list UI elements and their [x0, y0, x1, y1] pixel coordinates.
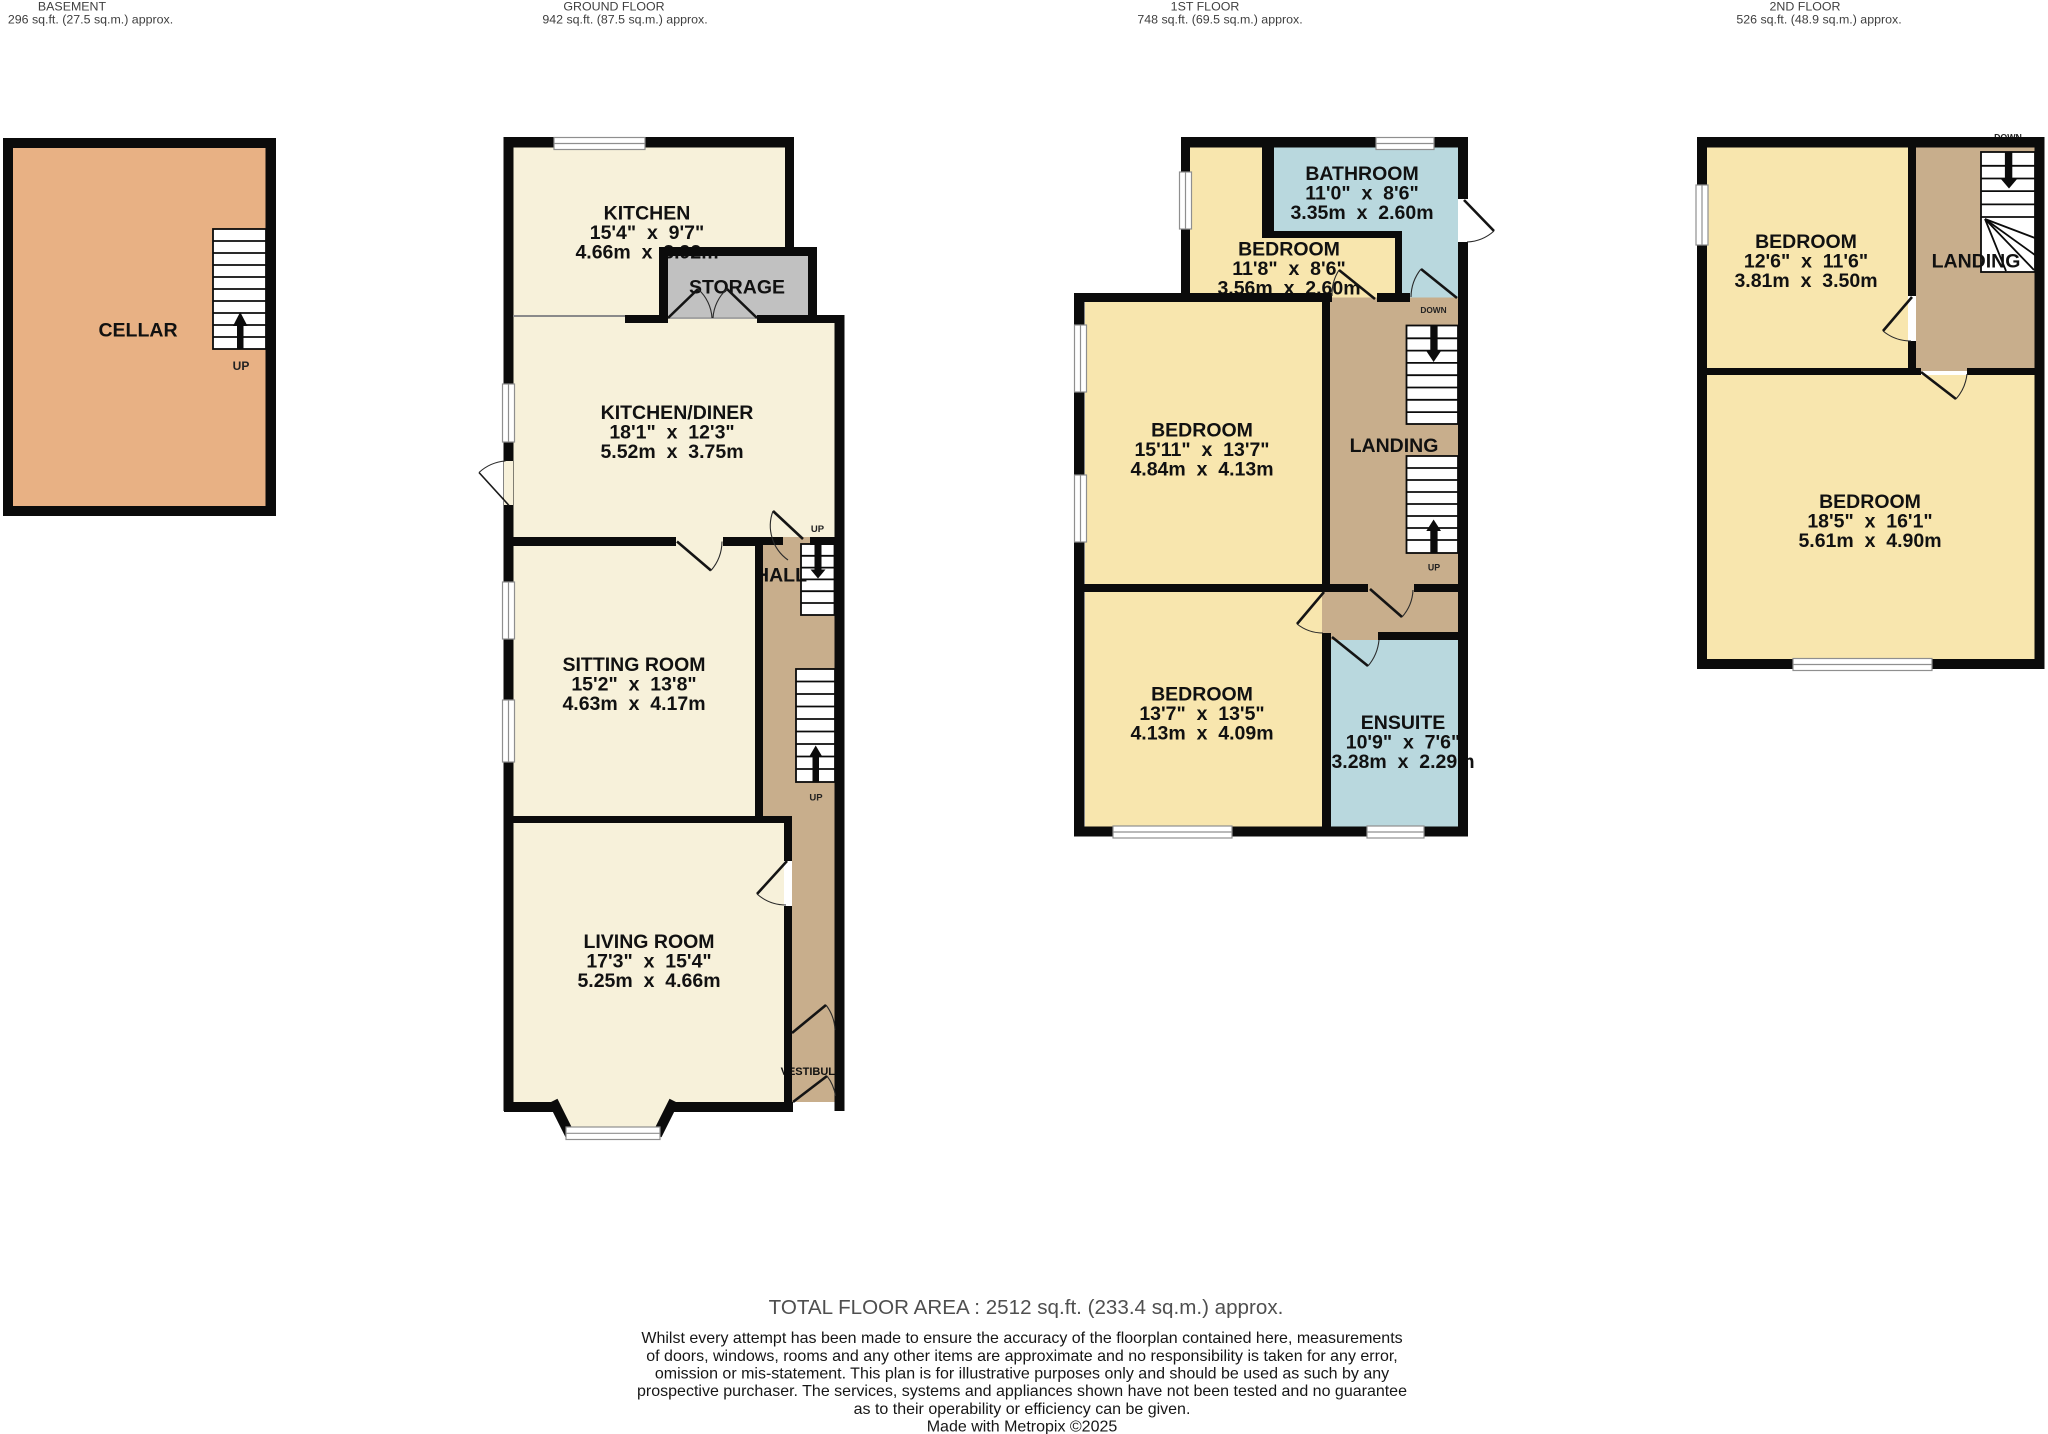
- svg-text:5.61m x 4.90m: 5.61m x 4.90m: [1798, 530, 1941, 552]
- svg-text:Whilst every attempt has been: Whilst every attempt has been made to en…: [641, 1330, 1402, 1347]
- svg-text:DOWN: DOWN: [1420, 305, 1446, 315]
- svg-text:omission or mis-statement. Thi: omission or mis-statement. This plan is …: [655, 1366, 1389, 1383]
- svg-text:4.84m x 4.13m: 4.84m x 4.13m: [1130, 458, 1273, 480]
- svg-text:CELLAR: CELLAR: [98, 320, 177, 342]
- svg-text:3.81m x 3.50m: 3.81m x 3.50m: [1734, 270, 1877, 292]
- svg-text:4.13m x 4.09m: 4.13m x 4.09m: [1130, 723, 1273, 745]
- svg-text:3.35m x 2.60m: 3.35m x 2.60m: [1290, 202, 1433, 224]
- svg-text:UP: UP: [233, 359, 250, 373]
- svg-text:Made with Metropix ©2025: Made with Metropix ©2025: [927, 1419, 1118, 1434]
- svg-text:3.28m x 2.29m: 3.28m x 2.29m: [1331, 751, 1474, 773]
- svg-text:4.63m x 4.17m: 4.63m x 4.17m: [562, 693, 705, 715]
- svg-text:LANDING: LANDING: [1932, 250, 2021, 272]
- svg-text:of doors, windows, rooms and a: of doors, windows, rooms and any other i…: [646, 1348, 1397, 1365]
- svg-text:942 sq.ft. (87.5 sq.m.) approx: 942 sq.ft. (87.5 sq.m.) approx.: [542, 12, 707, 26]
- svg-text:UP: UP: [809, 792, 823, 803]
- svg-text:LANDING: LANDING: [1350, 435, 1439, 457]
- svg-text:prospective purchaser. The ser: prospective purchaser. The services, sys…: [637, 1383, 1407, 1400]
- svg-text:5.25m x 4.66m: 5.25m x 4.66m: [577, 970, 720, 992]
- svg-text:526 sq.ft. (48.9 sq.m.) approx: 526 sq.ft. (48.9 sq.m.) approx.: [1736, 12, 1901, 26]
- svg-text:as to their operability or eff: as to their operability or efficiency ca…: [854, 1401, 1191, 1418]
- svg-text:UP: UP: [811, 524, 825, 535]
- svg-text:5.52m x 3.75m: 5.52m x 3.75m: [600, 441, 743, 463]
- svg-text:296 sq.ft. (27.5 sq.m.) approx: 296 sq.ft. (27.5 sq.m.) approx.: [8, 12, 173, 26]
- svg-text:UP: UP: [1428, 562, 1440, 572]
- svg-text:748 sq.ft. (69.5 sq.m.) approx: 748 sq.ft. (69.5 sq.m.) approx.: [1137, 12, 1302, 26]
- svg-text:TOTAL FLOOR AREA : 2512 sq.ft.: TOTAL FLOOR AREA : 2512 sq.ft. (233.4 sq…: [769, 1296, 1284, 1319]
